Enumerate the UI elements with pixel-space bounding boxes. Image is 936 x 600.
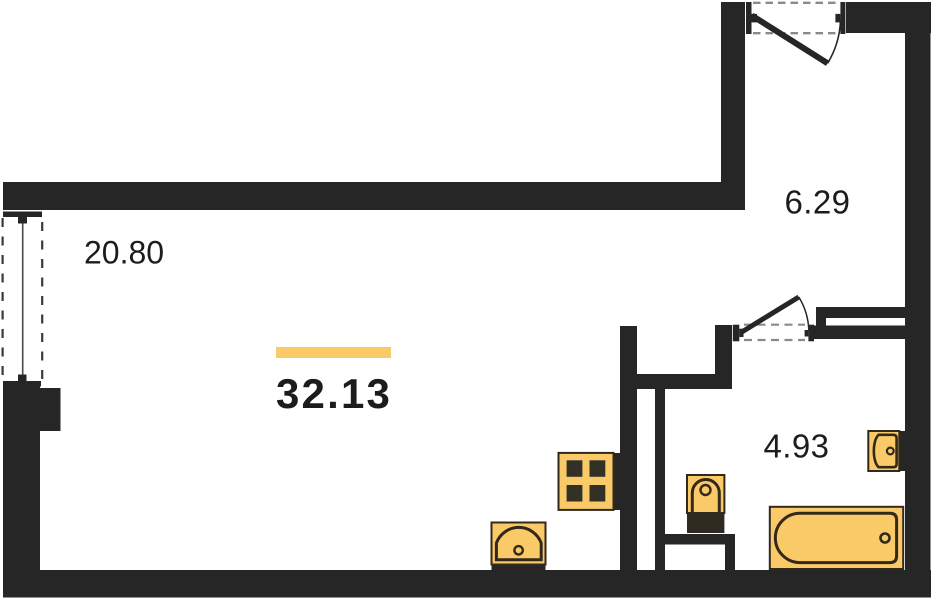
svg-text:6.29: 6.29 <box>785 184 851 221</box>
svg-text:20.80: 20.80 <box>84 235 164 271</box>
svg-text:4.93: 4.93 <box>764 428 830 465</box>
svg-text:32.13: 32.13 <box>276 370 392 417</box>
